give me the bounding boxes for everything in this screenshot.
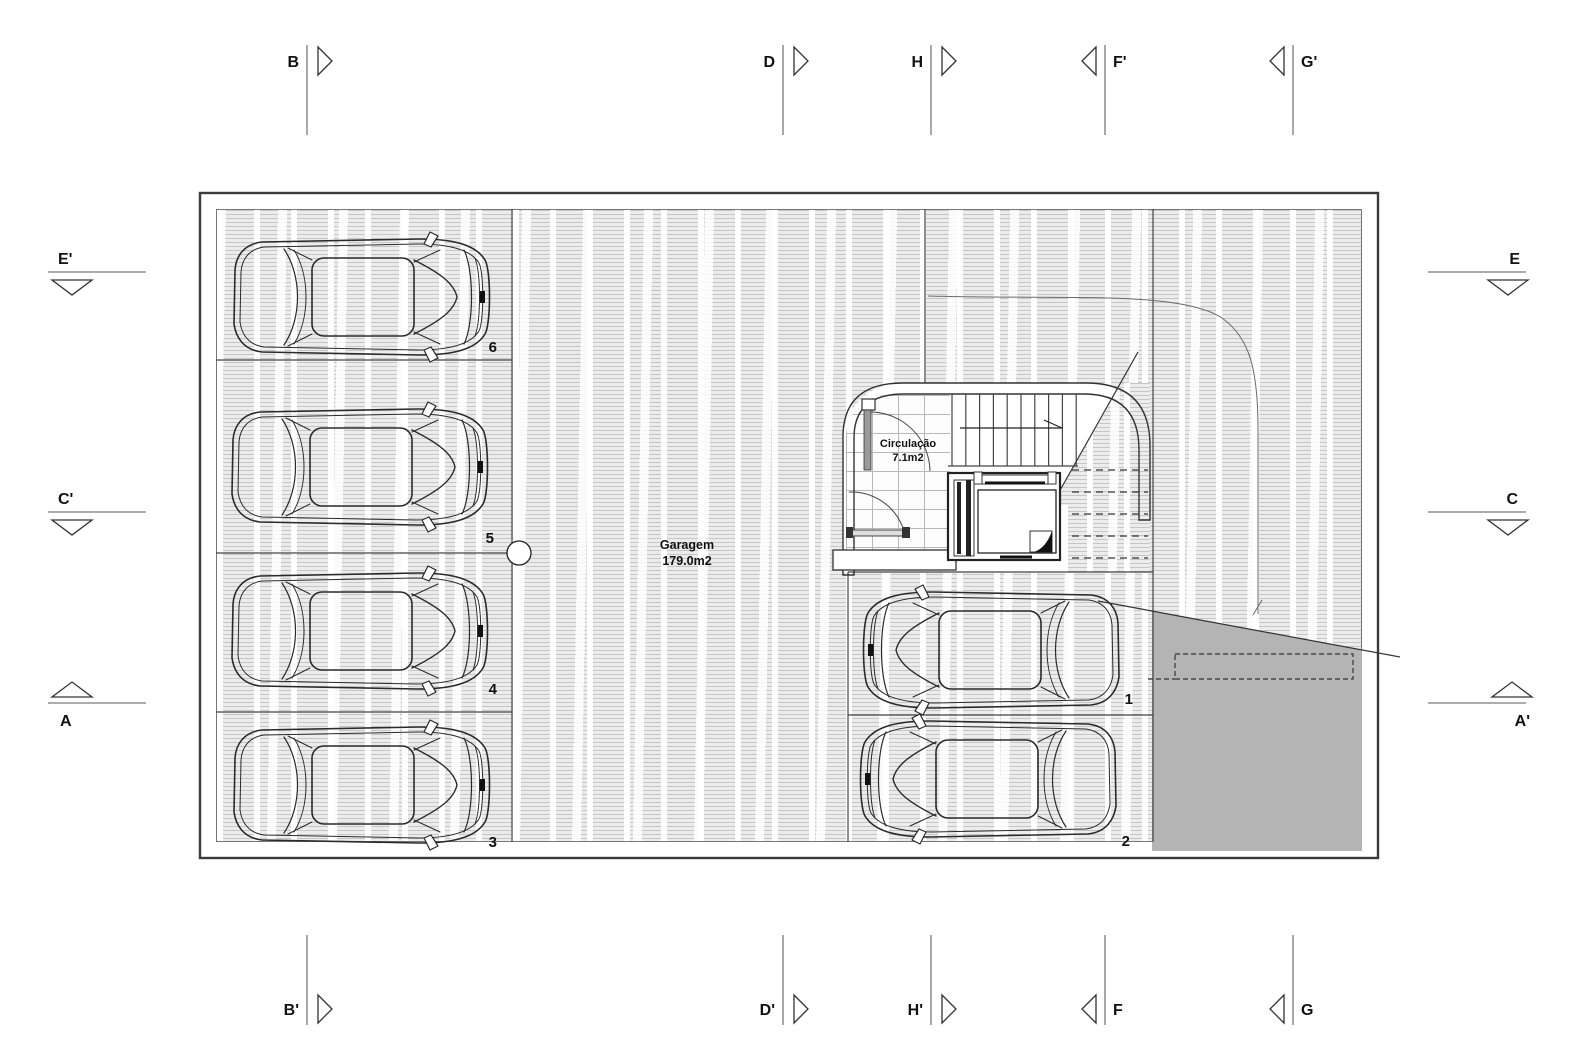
section-arrow-icon — [318, 995, 332, 1023]
section-marker-E: E — [1428, 251, 1528, 295]
svg-text:E: E — [1509, 251, 1520, 268]
column — [507, 541, 531, 565]
space-number-2: 2 — [1122, 833, 1130, 850]
svg-text:C': C' — [58, 491, 73, 508]
section-marker-A-prime: A' — [1428, 682, 1532, 730]
section-arrow-icon — [52, 520, 92, 535]
section-arrow-icon — [942, 995, 956, 1023]
section-arrow-icon — [1082, 47, 1096, 75]
circulation-room-area: 7.1m2 — [892, 452, 923, 464]
garage-room-name: Garagem — [660, 538, 714, 552]
parking-space-numbers: 6 5 4 3 1 2 — [486, 339, 1133, 851]
svg-text:F: F — [1113, 1002, 1123, 1019]
svg-text:H: H — [911, 54, 923, 71]
ramp-slope-dashes — [1072, 470, 1148, 558]
exterior-walls — [200, 193, 1378, 858]
ramp-landing-dashed — [1175, 654, 1353, 679]
door-lower — [846, 492, 910, 538]
section-arrow-icon — [1270, 47, 1284, 75]
svg-text:H': H' — [908, 1002, 923, 1019]
car-2 — [861, 714, 1117, 844]
stair-core — [833, 352, 1150, 575]
circulation-room-name: Circulação — [880, 438, 937, 450]
car-1 — [864, 585, 1120, 715]
car-4 — [232, 566, 488, 696]
section-marker-C-prime: C' — [48, 491, 146, 535]
stair-direction-arrow — [960, 420, 1062, 428]
section-arrow-icon — [52, 682, 92, 697]
svg-text:F': F' — [1113, 54, 1127, 71]
section-marker-G: G — [1270, 935, 1313, 1025]
svg-text:A': A' — [1515, 713, 1530, 730]
svg-text:G: G — [1301, 1002, 1313, 1019]
space-number-6: 6 — [489, 339, 497, 356]
section-marker-H-prime: H' — [908, 935, 956, 1025]
section-marker-F: F — [1082, 935, 1123, 1025]
elevator — [948, 472, 1060, 560]
section-marker-D: D — [763, 45, 808, 135]
section-arrow-icon — [794, 995, 808, 1023]
section-marker-E-prime: E' — [48, 251, 146, 295]
section-arrow-icon — [794, 47, 808, 75]
space-number-3: 3 — [489, 834, 497, 851]
section-arrow-icon — [1488, 280, 1528, 295]
section-arrow-icon — [1082, 995, 1096, 1023]
section-arrow-icon — [1270, 995, 1284, 1023]
section-arrow-icon — [1492, 682, 1532, 697]
section-arrow-icon — [318, 47, 332, 75]
svg-text:C: C — [1506, 491, 1518, 508]
space-number-1: 1 — [1125, 691, 1133, 708]
svg-text:B': B' — [284, 1002, 299, 1019]
section-arrow-icon — [1488, 520, 1528, 535]
space-number-4: 4 — [489, 681, 498, 698]
garage-floor-plan-page: { "document": { "type": "architectural-f… — [0, 0, 1572, 1058]
car-3 — [234, 720, 490, 850]
floor-plan-linework: Garagem 179.0m2 Circulação 7.1m2 6 5 4 3… — [0, 0, 1572, 1058]
svg-text:A: A — [60, 713, 72, 730]
section-marker-H: H — [911, 45, 956, 135]
ramp — [1098, 601, 1400, 679]
section-marker-D-prime: D' — [760, 935, 808, 1025]
drive-path-curve — [928, 296, 1262, 615]
section-marker-G-prime: G' — [1270, 45, 1317, 135]
space-number-5: 5 — [486, 530, 494, 547]
svg-text:D': D' — [760, 1002, 775, 1019]
stair-treads — [948, 394, 1078, 466]
section-marker-F-prime: F' — [1082, 45, 1127, 135]
svg-text:E': E' — [58, 251, 72, 268]
garage-room-area: 179.0m2 — [662, 554, 711, 568]
section-marker-B-prime: B' — [284, 935, 332, 1025]
ramp-slope-edge — [1098, 601, 1400, 657]
svg-text:D: D — [763, 54, 775, 71]
svg-text:B: B — [287, 54, 299, 71]
core-bottom-wall — [833, 550, 956, 570]
section-marker-C: C — [1428, 491, 1528, 535]
stair-break-line — [1050, 352, 1138, 508]
svg-text:G': G' — [1301, 54, 1317, 71]
section-marker-B: B — [287, 45, 332, 135]
car-6 — [234, 232, 490, 362]
section-marker-A: A — [48, 682, 146, 730]
section-arrow-icon — [52, 280, 92, 295]
car-5 — [232, 402, 488, 532]
section-arrow-icon — [942, 47, 956, 75]
